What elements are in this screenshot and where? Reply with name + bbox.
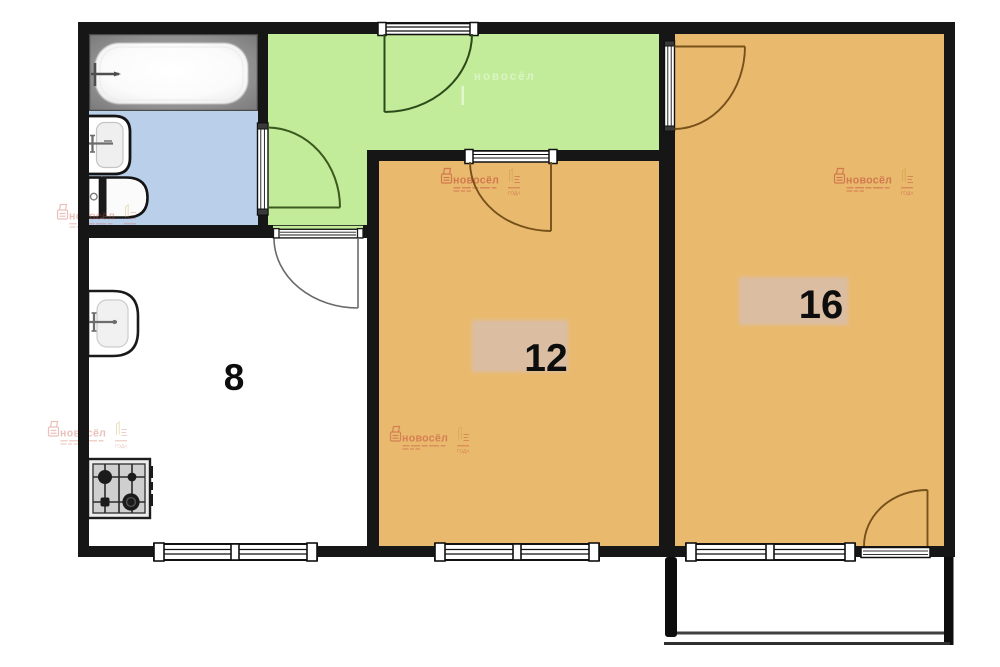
svg-text:12: 12 <box>524 337 567 380</box>
svg-text:новосёл: новосёл <box>474 71 536 83</box>
svg-text:8: 8 <box>224 357 245 398</box>
svg-text:16: 16 <box>799 283 844 327</box>
